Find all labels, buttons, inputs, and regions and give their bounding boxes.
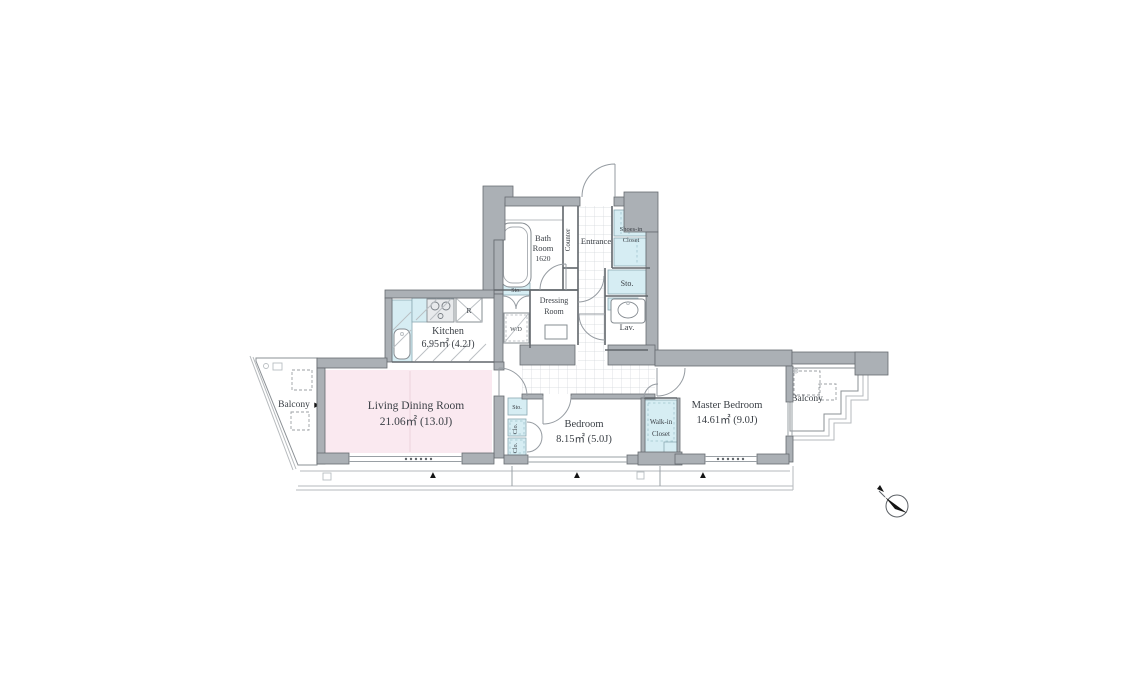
storage-hall-label: Sto. <box>621 279 634 288</box>
living-dining-label: Living Dining Room <box>368 400 465 412</box>
storage-dressing-label: Sto. <box>511 288 521 294</box>
window-triangle-icon: ▲ <box>572 470 582 481</box>
floor-plan-page: Balcony ▶ Balcony ◀ <box>0 0 1142 693</box>
living-dining-area: 21.06㎡ (13.0J) <box>380 415 453 428</box>
window-markers: ▲ ▲ ▲ <box>428 470 708 481</box>
balcony-bottom <box>323 466 660 486</box>
closet-label-1: Clo. <box>513 423 519 434</box>
master-bedroom-label: Master Bedroom <box>692 400 763 411</box>
dressing-label-2: Room <box>544 307 564 316</box>
kitchen-label: Kitchen <box>432 326 464 337</box>
drain-icon <box>323 473 331 480</box>
master-bedroom-area: 14.61㎡ (9.0J) <box>697 414 758 426</box>
walk-in-closet-label-1: Walk-in <box>650 418 673 426</box>
storage-bedroom-label: Sto. <box>512 405 522 411</box>
refrigerator-label: R <box>466 306 471 315</box>
walk-in-closet-label-2: Closet <box>652 430 670 438</box>
bath-label-1: Bath <box>535 233 552 243</box>
floor-plan-drawing: Balcony ▶ Balcony ◀ <box>0 0 1142 693</box>
bedroom-label: Bedroom <box>564 419 603 430</box>
shoes-closet-label-2: Closet <box>623 237 640 244</box>
balcony-left-label: Balcony <box>278 400 310 410</box>
bath-label-2: Room <box>533 243 554 253</box>
window-triangle-icon: ▲ <box>428 470 438 481</box>
balcony-right-label: Balcony <box>791 394 823 404</box>
entrance-label: Entrance <box>581 236 611 246</box>
dressing-counter <box>545 325 567 339</box>
shoes-closet-label-1: Shoes-in <box>620 226 644 233</box>
counter-label: Counter <box>564 228 572 251</box>
closet-label-2: Clo. <box>513 442 519 453</box>
kitchen-area: 6.95㎡ (4.2J) <box>421 338 474 350</box>
north-compass-icon <box>877 485 908 517</box>
wash-basin <box>611 299 645 323</box>
bedroom-area: 8.15㎡ (5.0J) <box>556 433 612 445</box>
drain-icon <box>637 472 644 479</box>
washer-dryer-label: W/D <box>510 327 522 333</box>
window-triangle-icon: ▲ <box>698 470 708 481</box>
dressing-label-1: Dressing <box>540 296 568 305</box>
bath-size: 1620 <box>536 254 551 263</box>
lavatory-label: Lav. <box>620 322 635 332</box>
